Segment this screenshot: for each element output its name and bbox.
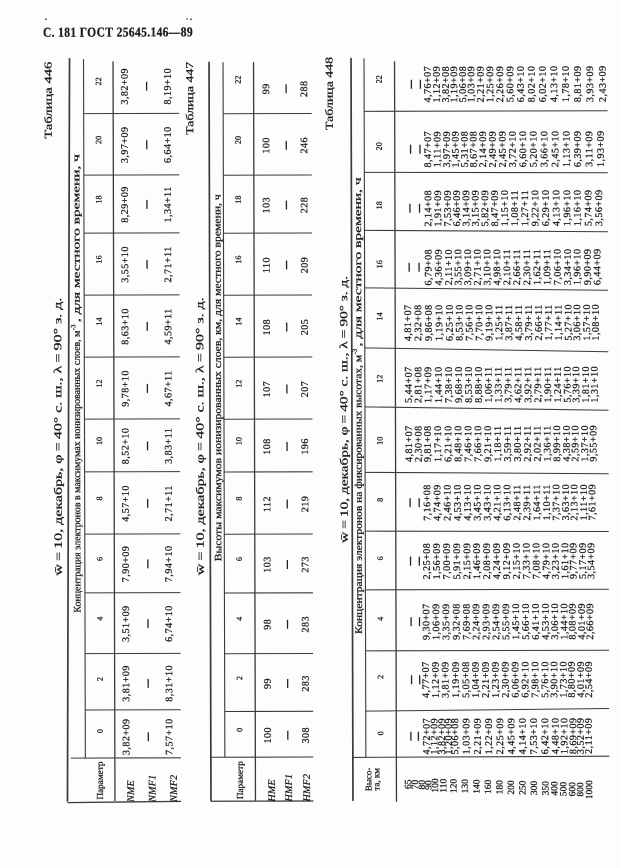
- svg-text:3,81+09: 3,81+09: [121, 665, 132, 702]
- svg-text:4,14+10: 4,14+10: [518, 718, 529, 755]
- svg-text:9,22+10: 9,22+10: [530, 190, 541, 227]
- svg-text:300: 300: [530, 781, 540, 796]
- svg-text:4: 4: [376, 617, 385, 621]
- svg-text:6,02+10: 6,02+10: [538, 66, 549, 103]
- svg-text:6: 6: [95, 557, 104, 561]
- svg-text:9,86+08: 9,86+08: [424, 304, 435, 341]
- svg-text:4: 4: [235, 617, 244, 621]
- svg-text:8,52+10: 8,52+10: [120, 428, 131, 465]
- svg-text:2: 2: [376, 675, 385, 679]
- svg-text:6,64+10: 6,64+10: [163, 126, 174, 163]
- svg-text:Концентрация электронов на фик: Концентрация электронов на фиксированных…: [353, 354, 365, 634]
- svg-text:5,06+08: 5,06+08: [450, 718, 461, 755]
- svg-text:283: 283: [300, 616, 311, 633]
- svg-text:219: 219: [300, 496, 311, 513]
- svg-text:1000: 1000: [585, 780, 595, 799]
- svg-text:8,02+10: 8,02+10: [527, 66, 538, 103]
- svg-text:110: 110: [262, 257, 273, 273]
- svg-text:Высоты максимумов ионизированн: Высоты максимумов ионизированных слоев, …: [212, 194, 224, 561]
- svg-text:20: 20: [234, 136, 243, 144]
- svg-text:2,45+10: 2,45+10: [550, 131, 561, 168]
- svg-text:103: 103: [261, 197, 272, 214]
- svg-text:HMF1: HMF1: [284, 774, 295, 803]
- svg-text:1,03+09: 1,03+09: [461, 718, 472, 755]
- svg-text:8: 8: [95, 496, 104, 500]
- svg-text:HME: HME: [267, 779, 278, 803]
- svg-text:6: 6: [235, 557, 244, 561]
- svg-text:6,44+09: 6,44+09: [592, 248, 603, 285]
- svg-text:, для местного времени, ч: , для местного времени, ч: [353, 177, 364, 346]
- svg-text:22: 22: [375, 75, 384, 83]
- svg-text:108: 108: [262, 438, 273, 455]
- svg-text:0: 0: [235, 728, 244, 732]
- svg-text:2,71+11: 2,71+11: [163, 246, 174, 282]
- svg-text:196: 196: [300, 438, 311, 455]
- svg-text:288: 288: [299, 80, 310, 97]
- svg-text:12: 12: [375, 375, 384, 383]
- svg-text:3,55+10: 3,55+10: [120, 246, 131, 283]
- svg-text:10: 10: [235, 437, 244, 445]
- svg-text:205: 205: [300, 319, 311, 336]
- svg-text:246: 246: [299, 137, 310, 154]
- svg-text:Таблица 446: Таблица 446: [44, 62, 55, 139]
- svg-text:4,13+10: 4,13+10: [551, 190, 562, 227]
- svg-text:3,83+11: 3,83+11: [163, 428, 174, 464]
- svg-text:-3: -3: [70, 324, 77, 330]
- svg-text:2: 2: [235, 676, 244, 680]
- svg-text:2,54+09: 2,54+09: [584, 661, 595, 698]
- svg-text:w̄ = 10, декабрь, φ = 40° с. ш: w̄ = 10, декабрь, φ = 40° с. ш., λ = 90°…: [194, 297, 207, 575]
- svg-text:С. 181 ГОСТ 25645.146—89: С. 181 ГОСТ 25645.146—89: [43, 24, 193, 39]
- svg-text:22: 22: [234, 76, 243, 84]
- svg-text:2,32+08: 2,32+08: [413, 304, 424, 341]
- svg-text:3,82+09: 3,82+09: [120, 68, 131, 105]
- svg-text:NME: NME: [126, 780, 137, 803]
- svg-text:2,21+09: 2,21+09: [473, 718, 484, 755]
- svg-text:16: 16: [95, 255, 104, 263]
- svg-text:180: 180: [496, 780, 506, 795]
- svg-text:228: 228: [299, 197, 310, 214]
- svg-text:1,31+10: 1,31+10: [590, 366, 601, 403]
- svg-text:207: 207: [300, 381, 311, 398]
- svg-text:120: 120: [450, 779, 460, 794]
- svg-text:6,60+10: 6,60+10: [518, 131, 529, 168]
- svg-text:1,08+10: 1,08+10: [591, 304, 602, 341]
- svg-text:1,93+09: 1,93+09: [596, 130, 607, 167]
- svg-text:8,31+10: 8,31+10: [164, 665, 175, 702]
- svg-text:6,43+10: 6,43+10: [516, 66, 527, 103]
- svg-text:22: 22: [94, 77, 103, 85]
- svg-text:14: 14: [234, 318, 243, 326]
- svg-text:18: 18: [234, 196, 243, 204]
- svg-text:200: 200: [507, 780, 517, 795]
- svg-text:10: 10: [95, 437, 104, 445]
- svg-text:103: 103: [262, 556, 273, 573]
- svg-text:8: 8: [376, 498, 385, 502]
- svg-text:Концентрация электронов в макс: Концентрация электронов в максимумах ион…: [72, 330, 84, 613]
- svg-text:w̄ = 10, декабрь, φ = 40° с. ш: w̄ = 10, декабрь, φ = 40° с. ш., λ = 90°…: [52, 297, 65, 575]
- svg-text:20: 20: [375, 142, 384, 150]
- svg-text:8,29+09: 8,29+09: [120, 186, 131, 223]
- svg-text:3,82+09: 3,82+09: [121, 718, 132, 755]
- svg-text:4,13+10: 4,13+10: [549, 66, 560, 103]
- svg-text:5,20+10: 5,20+10: [529, 131, 540, 168]
- svg-text:12: 12: [234, 380, 243, 388]
- svg-text:8,63+10: 8,63+10: [120, 308, 131, 345]
- svg-text:Параметр: Параметр: [235, 761, 245, 799]
- svg-text:10: 10: [376, 437, 385, 445]
- svg-text:2,11+09: 2,11+09: [584, 718, 595, 754]
- svg-text:3,51+09: 3,51+09: [121, 605, 132, 642]
- svg-text:308: 308: [301, 727, 312, 744]
- svg-text:140: 140: [473, 779, 483, 794]
- svg-text:100: 100: [263, 727, 274, 744]
- svg-text:2,66+09: 2,66+09: [585, 603, 596, 640]
- svg-text:1,13+10: 1,13+10: [562, 130, 573, 167]
- svg-text:4: 4: [95, 617, 104, 621]
- svg-text:18: 18: [94, 195, 103, 203]
- svg-text:2,71+11: 2,71+11: [164, 485, 175, 521]
- svg-text:6,29+10: 6,29+10: [541, 190, 552, 227]
- svg-text:2,25+09: 2,25+09: [495, 718, 506, 755]
- svg-text:1,78+10: 1,78+10: [561, 65, 572, 102]
- svg-text:16: 16: [234, 256, 243, 264]
- svg-text:NMF1: NMF1: [147, 775, 158, 803]
- svg-text:1,22+09: 1,22+09: [484, 718, 495, 755]
- svg-text:283: 283: [301, 675, 312, 692]
- svg-text:12: 12: [95, 379, 104, 387]
- svg-text:5,74+09: 5,74+09: [583, 189, 594, 226]
- svg-text:14: 14: [375, 312, 384, 320]
- svg-text:0: 0: [376, 731, 385, 735]
- svg-text:2: 2: [96, 677, 105, 681]
- svg-text:20: 20: [94, 136, 103, 144]
- svg-text:130: 130: [461, 779, 471, 794]
- svg-text:NMF2: NMF2: [169, 775, 180, 803]
- svg-text:9,78+10: 9,78+10: [120, 370, 131, 407]
- svg-text:w̄ = 10, декабрь, φ = 40° с. ш: w̄ = 10, декабрь, φ = 40° с. ш., λ = 90°…: [338, 276, 351, 543]
- svg-text:1,16+10: 1,16+10: [572, 189, 583, 226]
- svg-text:HMF2: HMF2: [302, 774, 313, 803]
- svg-text:3,11+09: 3,11+09: [584, 131, 595, 167]
- svg-text:Параметр: Параметр: [95, 761, 105, 799]
- svg-text:6: 6: [376, 556, 385, 560]
- svg-text:3,54+09: 3,54+09: [586, 542, 597, 579]
- svg-text:5,60+09: 5,60+09: [505, 66, 516, 103]
- svg-text:8,19+10: 8,19+10: [163, 68, 174, 105]
- svg-text:, для местного времени, ч: , для местного времени, ч: [71, 154, 82, 322]
- svg-text:9,55+09: 9,55+09: [588, 425, 599, 462]
- svg-text:1,34+11: 1,34+11: [163, 186, 174, 222]
- svg-text:4,45+09: 4,45+09: [506, 718, 517, 755]
- svg-text:6,74+10: 6,74+10: [164, 605, 175, 642]
- svg-text:16: 16: [375, 260, 384, 268]
- svg-text:6,39+09: 6,39+09: [573, 130, 584, 167]
- svg-text:7,57+10: 7,57+10: [164, 718, 175, 755]
- svg-text:273: 273: [300, 556, 311, 573]
- svg-text:7,94+10: 7,94+10: [164, 545, 175, 582]
- svg-text:4,67+11: 4,67+11: [163, 370, 174, 406]
- svg-text:98: 98: [262, 619, 273, 630]
- svg-text:3,56+09: 3,56+09: [594, 189, 605, 226]
- svg-text:3,97+09: 3,97+09: [120, 126, 131, 163]
- svg-text:18: 18: [375, 201, 384, 209]
- svg-text:99: 99: [263, 678, 274, 689]
- svg-text:99: 99: [261, 83, 272, 94]
- svg-text:107: 107: [262, 381, 273, 398]
- svg-text:-3: -3: [352, 348, 359, 354]
- svg-text:7,53+10: 7,53+10: [529, 718, 540, 755]
- svg-text:209: 209: [300, 257, 311, 274]
- svg-text:250: 250: [519, 780, 529, 795]
- svg-text:8,81+09: 8,81+09: [573, 65, 584, 102]
- svg-text:7,90+09: 7,90+09: [121, 546, 132, 583]
- svg-text:108: 108: [262, 319, 273, 336]
- svg-text:3,93+09: 3,93+09: [585, 65, 596, 102]
- svg-text:4,57+10: 4,57+10: [121, 485, 132, 522]
- svg-text:8: 8: [235, 497, 244, 501]
- svg-text:0: 0: [96, 729, 105, 733]
- svg-text:Таблица 447: Таблица 447: [185, 62, 196, 135]
- svg-text:100: 100: [261, 137, 272, 154]
- svg-text:Таблица 448: Таблица 448: [325, 57, 336, 130]
- svg-text:112: 112: [262, 496, 273, 512]
- svg-text:2,43+09: 2,43+09: [598, 65, 609, 102]
- svg-text:110: 110: [439, 779, 449, 793]
- svg-text:3,66+10: 3,66+10: [539, 131, 550, 168]
- svg-text:та, км: та, км: [371, 768, 381, 791]
- svg-text:7,61+09: 7,61+09: [587, 484, 598, 521]
- svg-text:4,59+11: 4,59+11: [163, 308, 174, 344]
- svg-text:160: 160: [484, 779, 494, 794]
- svg-text:14: 14: [95, 317, 104, 325]
